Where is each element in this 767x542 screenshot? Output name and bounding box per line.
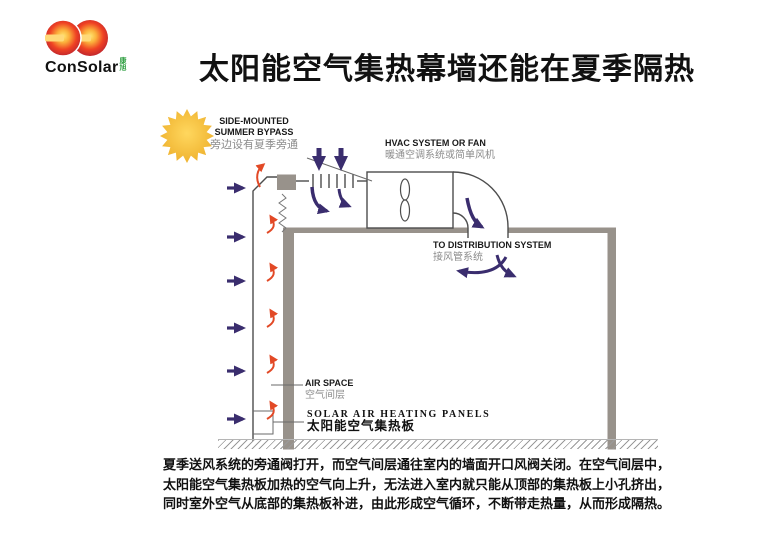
label-hvac-cn: 暖通空调系统或简单风机: [385, 150, 495, 162]
consolar-logo-icon: [45, 20, 108, 56]
hvac-box: [367, 172, 453, 228]
caption-line-1: 夏季送风系统的旁通阀打开，而空气间层通往室内的墙面开口风阀关闭。在空气间层中，: [163, 455, 670, 475]
label-air-space-cn: 空气间层: [305, 390, 353, 402]
ground-hatch: [218, 439, 658, 449]
label-air-space-en: AIR SPACE: [305, 378, 353, 389]
bypass-grille: [296, 174, 367, 188]
label-distribution: TO DISTRIBUTION SYSTEM 接风管系统: [433, 240, 551, 264]
caption: 夏季送风系统的旁通阀打开，而空气间层通往室内的墙面开口风阀关闭。在空气间层中， …: [163, 455, 670, 514]
label-distribution-en: TO DISTRIBUTION SYSTEM: [433, 240, 551, 251]
label-distribution-cn: 接风管系统: [433, 252, 551, 264]
hot-air-arrows: [257, 165, 274, 419]
logo-brand: ConSolar康旭: [45, 58, 129, 77]
label-summer-bypass-en1: SIDE-MOUNTED: [202, 116, 306, 127]
logo-brand-text: ConSolar: [45, 59, 119, 76]
label-air-space: AIR SPACE 空气间层: [305, 378, 353, 402]
collector-panel: [253, 177, 286, 441]
logo-sub-text: 康旭: [120, 58, 129, 72]
label-summer-bypass-en2: SUMMER BYPASS: [202, 127, 306, 138]
label-hvac: HVAC SYSTEM OR FAN 暖通空调系统或简单风机: [385, 138, 495, 162]
caption-line-2: 太阳能空气集热板加热的空气向上升，无法进入室内就只能从顶部的集热板上小孔挤出，: [163, 475, 670, 495]
slide: ConSolar康旭 太阳能空气集热幕墙还能在夏季隔热 SIDE-MOUNTED…: [0, 0, 767, 542]
label-summer-bypass: SIDE-MOUNTED SUMMER BYPASS 旁边设有夏季旁通: [202, 116, 306, 151]
outside-air-arrows: [227, 188, 243, 419]
label-summer-bypass-cn: 旁边设有夏季旁通: [202, 139, 306, 151]
label-solar-panels: SOLAR AIR HEATING PANELS 太阳能空气集热板: [307, 409, 490, 432]
caption-line-3: 同时室外空气从底部的集热板补进，由此形成空气循环，不断带走热量，从而形成隔热。: [163, 494, 670, 514]
label-hvac-en: HVAC SYSTEM OR FAN: [385, 138, 495, 149]
page-title: 太阳能空气集热幕墙还能在夏季隔热: [199, 44, 695, 88]
label-solar-panels-cn: 太阳能空气集热板: [307, 421, 490, 432]
